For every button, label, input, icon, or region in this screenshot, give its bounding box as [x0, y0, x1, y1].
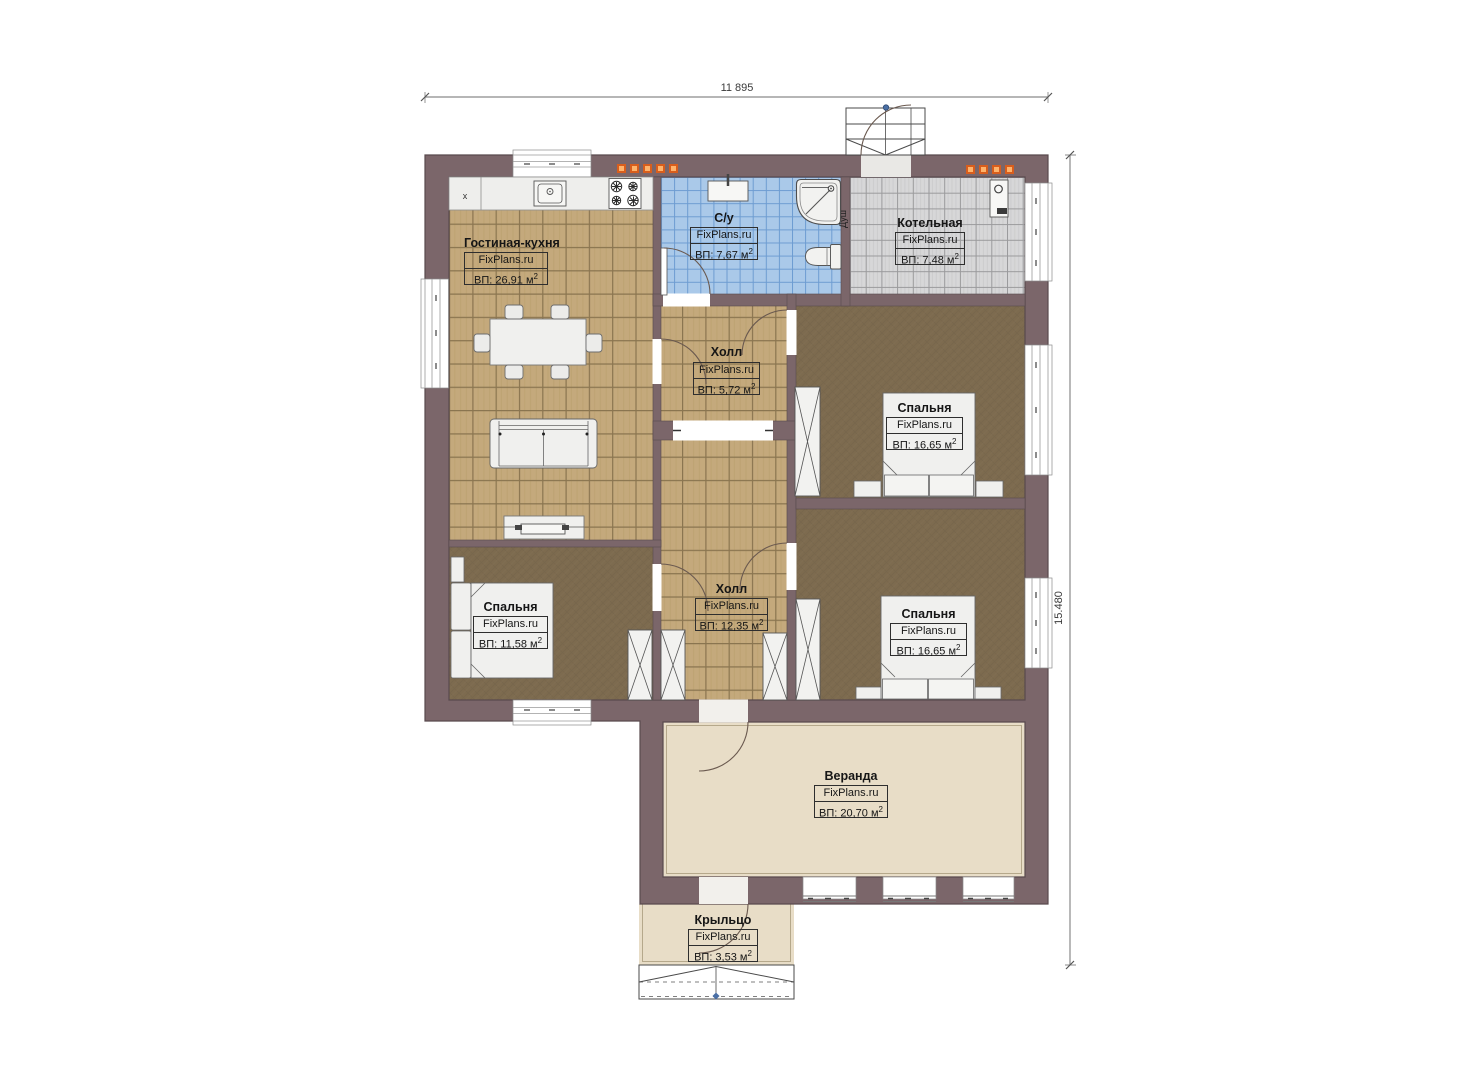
svg-text:Душ: Душ — [838, 210, 848, 228]
svg-text:x: x — [463, 191, 468, 201]
